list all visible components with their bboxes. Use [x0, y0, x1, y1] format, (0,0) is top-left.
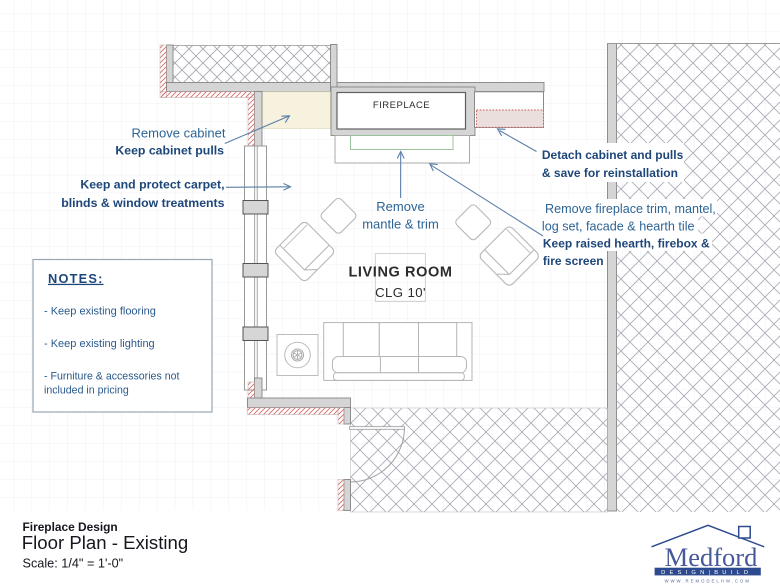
svg-text:CLG 10': CLG 10' — [375, 285, 426, 300]
svg-text:Detach cabinet and pulls: Detach cabinet and pulls — [542, 148, 684, 162]
svg-text:LIVING ROOM: LIVING ROOM — [348, 265, 452, 281]
svg-text:Medford: Medford — [665, 542, 758, 572]
svg-text:Remove cabinet: Remove cabinet — [132, 126, 226, 141]
svg-text:WWW.REMODELHW.COM: WWW.REMODELHW.COM — [664, 578, 751, 583]
svg-text:FIREPLACE: FIREPLACE — [373, 100, 430, 111]
svg-text:- Keep existing lighting: - Keep existing lighting — [44, 338, 155, 350]
svg-text:Remove fireplace trim, mantel,: Remove fireplace trim, mantel, — [545, 202, 716, 216]
svg-text:Floor Plan - Existing: Floor Plan - Existing — [22, 532, 188, 553]
svg-text:blinds & window treatments: blinds & window treatments — [61, 196, 224, 210]
svg-text:log set, facade & hearth tile: log set, facade & hearth tile — [542, 220, 695, 234]
svg-text:- Keep existing flooring: - Keep existing flooring — [44, 306, 156, 318]
svg-text:NOTES:: NOTES: — [48, 271, 104, 286]
svg-text:Remove: Remove — [376, 199, 424, 214]
svg-text:Keep and protect carpet,: Keep and protect carpet, — [80, 178, 224, 192]
svg-text:mantle & trim: mantle & trim — [362, 217, 439, 232]
svg-text:fire screen: fire screen — [543, 254, 604, 268]
svg-text:- Furniture & accessories not: - Furniture & accessories not — [44, 370, 179, 382]
svg-text:& save for reinstallation: & save for reinstallation — [542, 166, 678, 180]
svg-text:included in pricing: included in pricing — [44, 384, 129, 396]
svg-text:Keep raised hearth, firebox &: Keep raised hearth, firebox & — [543, 237, 710, 251]
svg-text:DESIGN|BUILD: DESIGN|BUILD — [661, 570, 752, 576]
svg-text:Keep cabinet pulls: Keep cabinet pulls — [115, 144, 224, 158]
svg-text:Scale: 1/4" = 1'-0": Scale: 1/4" = 1'-0" — [23, 557, 124, 571]
